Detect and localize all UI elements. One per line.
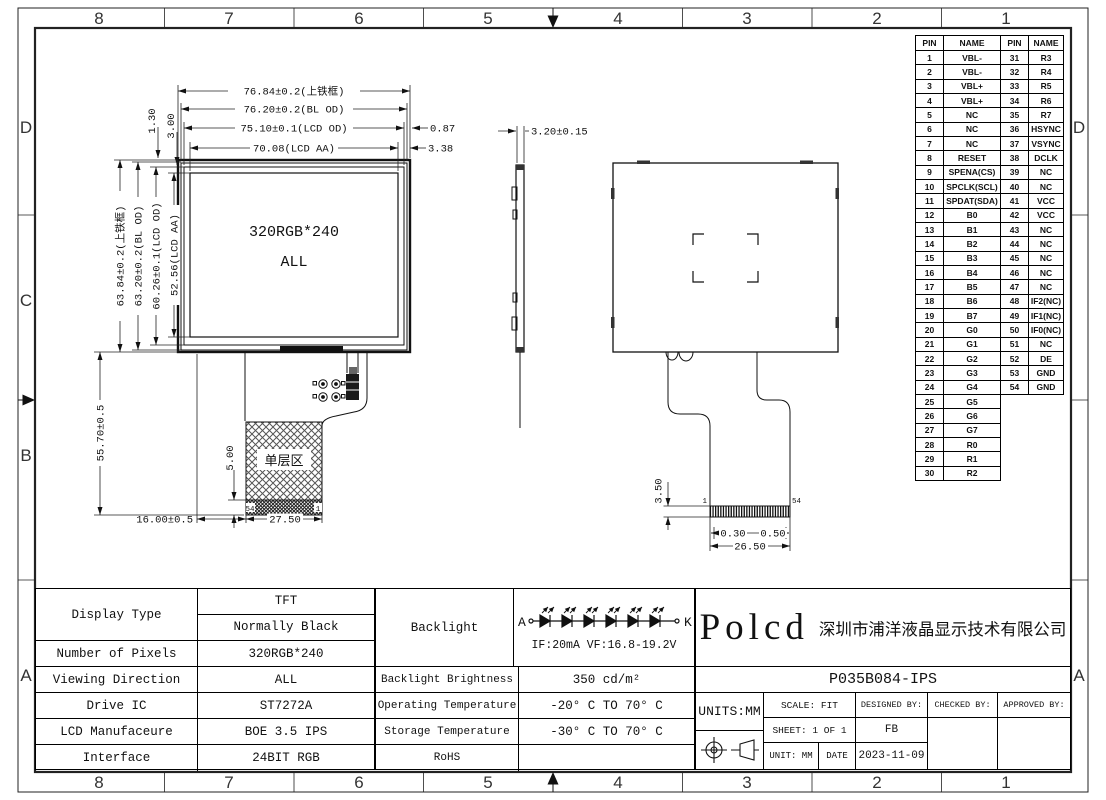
pin-number-cell: 48 xyxy=(1001,295,1029,309)
svg-text:2: 2 xyxy=(872,773,881,792)
pin-table-header: NAME xyxy=(944,36,1001,51)
pin-table-header: PIN xyxy=(1001,36,1029,51)
spec-value: Normally Black xyxy=(198,615,374,640)
pin-number-cell: 10 xyxy=(916,180,944,194)
pin-number-cell: 46 xyxy=(1001,266,1029,280)
pin-name-cell: IF1(NC) xyxy=(1029,309,1064,323)
checked-by-cell: CHECKED BY: xyxy=(928,693,997,718)
pin-number-cell: 31 xyxy=(1001,51,1029,65)
pin-name-cell: VSYNC xyxy=(1029,137,1064,151)
spec-label: Operating Temperature xyxy=(376,693,519,719)
spec-label: Interface xyxy=(36,745,198,771)
pin-name-cell: SPDAT(SDA) xyxy=(944,194,1001,208)
pin-number-cell: 5 xyxy=(916,108,944,122)
svg-text:1: 1 xyxy=(1001,773,1010,792)
svg-text:7: 7 xyxy=(224,9,233,28)
pin-name-cell: R0 xyxy=(944,438,1001,452)
pin-number-cell: 43 xyxy=(1001,223,1029,237)
svg-text:26.50: 26.50 xyxy=(734,542,766,554)
svg-text:0.50: 0.50 xyxy=(760,529,785,541)
svg-text:0.87: 0.87 xyxy=(430,124,455,136)
pin-name-cell: B3 xyxy=(944,252,1001,266)
spec-row: Drive IC ST7272A xyxy=(36,693,374,719)
projection-symbol-cell xyxy=(696,731,763,769)
pin-name-cell: NC xyxy=(1029,266,1064,280)
spec-row: Number of Pixels 320RGB*240 xyxy=(36,641,374,667)
pin-name-cell: R1 xyxy=(944,452,1001,466)
pin-name-cell: GND xyxy=(1029,366,1064,380)
svg-text:55.70±0.5: 55.70±0.5 xyxy=(96,405,108,462)
pin-number-cell: 1 xyxy=(916,51,944,65)
pin-name-cell: G4 xyxy=(944,381,1001,395)
pin-number-cell: 49 xyxy=(1001,309,1029,323)
units-column: UNITS:MM xyxy=(696,693,764,769)
designed-by-cell: DESIGNED BY: xyxy=(856,693,927,718)
date-value-cell: 2023-11-09 xyxy=(856,743,927,769)
pin-name-cell: NC xyxy=(1029,237,1064,251)
pin-name-cell: R4 xyxy=(1029,65,1064,79)
company-header: Polcd 深圳市浦洋液晶显示技术有限公司 xyxy=(696,589,1070,667)
svg-text:3.38: 3.38 xyxy=(428,144,453,156)
pin-number-cell: 17 xyxy=(916,280,944,294)
pin-table-right: PIN NAME 31 R3 32 R4 33 R5 34 R6 35 R7 3… xyxy=(1000,35,1064,395)
svg-text:5: 5 xyxy=(483,773,492,792)
pin-number-cell: 20 xyxy=(916,323,944,337)
pin-name-cell: SPCLK(SCL) xyxy=(944,180,1001,194)
pin-number-cell: 54 xyxy=(1001,381,1029,395)
led-emission-arrows xyxy=(542,607,664,613)
spec-label: Number of Pixels xyxy=(36,641,198,667)
led-circuit-diagram: A K xyxy=(514,604,694,634)
pin-table-header: PIN xyxy=(916,36,944,51)
pin-name-cell: B6 xyxy=(944,295,1001,309)
first-angle-projection-icon xyxy=(698,733,762,767)
pin-name-cell: G2 xyxy=(944,352,1001,366)
pin-name-cell: NC xyxy=(1029,280,1064,294)
company-name: 深圳市浦洋液晶显示技术有限公司 xyxy=(819,616,1067,640)
pin-name-cell: NC xyxy=(1029,180,1064,194)
svg-text:3.50: 3.50 xyxy=(654,478,666,503)
svg-text:54: 54 xyxy=(792,498,802,506)
pin-number-cell: 19 xyxy=(916,309,944,323)
pin-number-cell: 32 xyxy=(1001,65,1029,79)
svg-text:A: A xyxy=(518,615,526,630)
pin-number-cell: 44 xyxy=(1001,237,1029,251)
spec-row: LCD Manufaceure BOE 3.5 IPS xyxy=(36,719,374,745)
svg-text:7: 7 xyxy=(224,773,233,792)
spec-label: LCD Manufaceure xyxy=(36,719,198,745)
pin-number-cell: 37 xyxy=(1001,137,1029,151)
pin-name-cell: VBL- xyxy=(944,65,1001,79)
svg-text:1.30: 1.30 xyxy=(147,108,159,133)
spec-value: -20° C TO 70° C xyxy=(519,693,694,719)
svg-text:16.00±0.5: 16.00±0.5 xyxy=(136,515,193,527)
pin-number-cell: 39 xyxy=(1001,166,1029,180)
svg-text:54: 54 xyxy=(245,506,255,514)
svg-text:320RGB*240: 320RGB*240 xyxy=(249,224,339,241)
spec-row: Storage Temperature -30° C TO 70° C xyxy=(376,719,694,745)
pin-number-cell: 6 xyxy=(916,123,944,137)
spec-value xyxy=(519,745,694,771)
spec-table-left: Display Type TFT Normally Black Number o… xyxy=(35,588,375,770)
spec-row: Interface 24BIT RGB xyxy=(36,745,374,771)
svg-text:A: A xyxy=(20,666,32,685)
pin-number-cell: 30 xyxy=(916,467,944,481)
spec-label: Drive IC xyxy=(36,693,198,719)
svg-text:76.20±0.2(BL OD): 76.20±0.2(BL OD) xyxy=(244,105,345,117)
pin-name-cell: B7 xyxy=(944,309,1001,323)
pin-number-cell: 15 xyxy=(916,252,944,266)
spec-value: ST7272A xyxy=(198,693,374,719)
pin-number-cell: 34 xyxy=(1001,94,1029,108)
svg-text:D: D xyxy=(1073,118,1085,137)
spec-row: Operating Temperature -20° C TO 70° C xyxy=(376,693,694,719)
svg-text:K: K xyxy=(684,615,692,630)
svg-text:8: 8 xyxy=(94,773,103,792)
pin-table-left: PIN NAME 1 VBL- 2 VBL- 3 VBL+ 4 VBL+ 5 N… xyxy=(915,35,1001,481)
svg-text:63.20±0.2(BL OD): 63.20±0.2(BL OD) xyxy=(134,206,146,307)
svg-text:1: 1 xyxy=(1001,9,1010,28)
title-block-grid: UNITS:MM SCALE: FIT SHEET: 1 OF 1 xyxy=(696,693,1070,769)
pin-name-cell: B5 xyxy=(944,280,1001,294)
pin-name-cell: R5 xyxy=(1029,80,1064,94)
svg-text:4: 4 xyxy=(613,9,622,28)
pin-name-cell: G1 xyxy=(944,338,1001,352)
pin-number-cell: 28 xyxy=(916,438,944,452)
pin-name-cell: VCC xyxy=(1029,194,1064,208)
pin-name-cell: R6 xyxy=(1029,94,1064,108)
spec-value: ALL xyxy=(198,667,374,693)
pin-number-cell: 4 xyxy=(916,94,944,108)
designer-cell: FB xyxy=(856,718,927,743)
pin-name-cell: B0 xyxy=(944,209,1001,223)
pin-number-cell: 42 xyxy=(1001,209,1029,223)
pin-number-cell: 35 xyxy=(1001,108,1029,122)
scale-column: SCALE: FIT SHEET: 1 OF 1 UNIT: MM DATE xyxy=(764,693,856,769)
scale-cell: SCALE: FIT xyxy=(764,693,855,718)
pin-name-cell: SPENA(CS) xyxy=(944,166,1001,180)
spec-value: TFT xyxy=(198,589,374,615)
pin-name-cell: VBL+ xyxy=(944,94,1001,108)
svg-text:3: 3 xyxy=(742,9,751,28)
svg-text:75.10±0.1(LCD OD): 75.10±0.1(LCD OD) xyxy=(240,124,347,136)
svg-text:60.26±0.1(LCD OD): 60.26±0.1(LCD OD) xyxy=(152,202,164,309)
pin-number-cell: 18 xyxy=(916,295,944,309)
spec-label: Viewing Direction xyxy=(36,667,198,693)
backlight-electrical-spec: IF:20mA VF:16.8-19.2V xyxy=(532,639,677,652)
checked-empty-cell xyxy=(928,718,997,769)
spec-value: 350 cd/m² xyxy=(519,667,694,693)
pin-name-cell: R7 xyxy=(1029,108,1064,122)
pin-number-cell: 36 xyxy=(1001,123,1029,137)
pin-number-cell: 13 xyxy=(916,223,944,237)
pin-number-cell: 52 xyxy=(1001,352,1029,366)
pin-name-cell: B1 xyxy=(944,223,1001,237)
checked-column: CHECKED BY: xyxy=(928,693,998,769)
pin-name-cell: IF0(NC) xyxy=(1029,323,1064,337)
pin-number-cell: 47 xyxy=(1001,280,1029,294)
pin-name-cell: NC xyxy=(1029,223,1064,237)
spec-value: 24BIT RGB xyxy=(198,745,374,771)
svg-text:D: D xyxy=(20,118,32,137)
pin-number-cell: 23 xyxy=(916,366,944,380)
spec-table-middle: Backlight A K xyxy=(375,588,695,770)
side-dim-text: 3.20±0.15 xyxy=(531,127,588,139)
pin-name-cell: IF2(NC) xyxy=(1029,295,1064,309)
pin-name-cell: VBL+ xyxy=(944,80,1001,94)
pin-number-cell: 2 xyxy=(916,65,944,79)
svg-text:8: 8 xyxy=(94,9,103,28)
approved-by-cell: APPROVED BY: xyxy=(998,693,1070,718)
spec-value: 320RGB*240 xyxy=(198,641,374,667)
pin-name-cell: G0 xyxy=(944,323,1001,337)
pin-name-cell: R3 xyxy=(1029,51,1064,65)
spec-value: -30° C TO 70° C xyxy=(519,719,694,745)
designed-column: DESIGNED BY: FB 2023-11-09 xyxy=(856,693,928,769)
spec-row: Backlight Brightness 350 cd/m² xyxy=(376,667,694,693)
pin-number-cell: 38 xyxy=(1001,151,1029,165)
pin-number-cell: 14 xyxy=(916,237,944,251)
pin-name-cell: RESET xyxy=(944,151,1001,165)
svg-text:ALL: ALL xyxy=(280,254,307,271)
pin-number-cell: 8 xyxy=(916,151,944,165)
title-block: Polcd 深圳市浦洋液晶显示技术有限公司 P035B084-IPS UNITS… xyxy=(695,588,1071,770)
pin-number-cell: 22 xyxy=(916,352,944,366)
pin-number-cell: 40 xyxy=(1001,180,1029,194)
svg-text:0.30: 0.30 xyxy=(720,529,745,541)
pin-name-cell: HSYNC xyxy=(1029,123,1064,137)
svg-text:63.84±0.2(上铁框): 63.84±0.2(上铁框) xyxy=(114,206,128,307)
unit-cell: UNIT: MM xyxy=(764,743,819,769)
spec-row-backlight: Backlight A K xyxy=(376,589,694,667)
pin-name-cell: B4 xyxy=(944,266,1001,280)
pin-number-cell: 33 xyxy=(1001,80,1029,94)
pin-number-cell: 3 xyxy=(916,80,944,94)
side-view-dimension xyxy=(498,126,529,163)
svg-text:4: 4 xyxy=(613,773,622,792)
spec-row-display-type: Display Type TFT Normally Black xyxy=(36,589,374,641)
svg-text:5: 5 xyxy=(483,9,492,28)
spec-label: RoHS xyxy=(376,745,519,771)
pin-number-cell: 50 xyxy=(1001,323,1029,337)
pin-number-cell: 51 xyxy=(1001,338,1029,352)
pin-name-cell: R2 xyxy=(944,467,1001,481)
drawing-sheet: 8 7 6 5 4 3 2 1 8 7 6 5 4 3 2 1 D C B A … xyxy=(0,0,1106,800)
pin-number-cell: 25 xyxy=(916,395,944,409)
pin-number-cell: 9 xyxy=(916,166,944,180)
pin-name-cell: NC xyxy=(1029,252,1064,266)
units-cell: UNITS:MM xyxy=(696,693,763,731)
pin-number-cell: 26 xyxy=(916,409,944,423)
spec-label: Backlight xyxy=(376,589,514,667)
pin-name-cell: NC xyxy=(944,137,1001,151)
pin-number-cell: 29 xyxy=(916,452,944,466)
pin-number-cell: 11 xyxy=(916,194,944,208)
pin-number-cell: 53 xyxy=(1001,366,1029,380)
company-logo: Polcd xyxy=(700,606,809,649)
svg-text:3.00: 3.00 xyxy=(166,113,178,138)
pin-name-cell: NC xyxy=(1029,338,1064,352)
svg-text:6: 6 xyxy=(354,773,363,792)
date-label-cell: DATE xyxy=(819,743,855,769)
part-number: P035B084-IPS xyxy=(696,667,1070,693)
pin-number-cell: 24 xyxy=(916,381,944,395)
pin-name-cell: NC xyxy=(944,123,1001,137)
svg-text:单层区: 单层区 xyxy=(264,454,303,469)
pin-number-cell: 45 xyxy=(1001,252,1029,266)
svg-text:6: 6 xyxy=(354,9,363,28)
svg-text:52.56(LCD AA): 52.56(LCD AA) xyxy=(170,214,182,296)
pin-table-header: NAME xyxy=(1029,36,1064,51)
pin-name-cell: G6 xyxy=(944,409,1001,423)
pin-name-cell: NC xyxy=(944,108,1001,122)
side-view xyxy=(512,165,524,428)
pin-number-cell: 41 xyxy=(1001,194,1029,208)
pin-name-cell: NC xyxy=(1029,166,1064,180)
pin-name-cell: B2 xyxy=(944,237,1001,251)
pin-name-cell: VCC xyxy=(1029,209,1064,223)
svg-text:2: 2 xyxy=(872,9,881,28)
pin-name-cell: VBL- xyxy=(944,51,1001,65)
rear-view xyxy=(611,161,839,518)
sheet-cell: SHEET: 1 OF 1 xyxy=(764,718,855,743)
pin-name-cell: GND xyxy=(1029,381,1064,395)
approved-column: APPROVED BY: xyxy=(998,693,1070,769)
approved-empty-cell xyxy=(998,718,1070,769)
pin-name-cell: G7 xyxy=(944,424,1001,438)
pin-name-cell: G3 xyxy=(944,366,1001,380)
svg-text:76.84±0.2(上铁框): 76.84±0.2(上铁框) xyxy=(244,85,345,99)
svg-text:1: 1 xyxy=(316,506,321,514)
pin-number-cell: 21 xyxy=(916,338,944,352)
svg-text:3: 3 xyxy=(742,773,751,792)
pin-number-cell: 27 xyxy=(916,424,944,438)
spec-label: Backlight Brightness xyxy=(376,667,519,693)
pin-name-cell: DCLK xyxy=(1029,151,1064,165)
svg-text:C: C xyxy=(20,291,32,310)
svg-text:A: A xyxy=(1073,666,1085,685)
pin-name-cell: DE xyxy=(1029,352,1064,366)
spec-row: RoHS xyxy=(376,745,694,771)
spec-label: Storage Temperature xyxy=(376,719,519,745)
svg-text:70.08(LCD AA): 70.08(LCD AA) xyxy=(253,144,335,156)
spec-row: Viewing Direction ALL xyxy=(36,667,374,693)
pin-number-cell: 12 xyxy=(916,209,944,223)
pin-name-cell: G5 xyxy=(944,395,1001,409)
spec-label: Display Type xyxy=(36,589,198,641)
svg-text:27.50: 27.50 xyxy=(269,515,301,527)
pin-number-cell: 7 xyxy=(916,137,944,151)
backlight-circuit-cell: A K xyxy=(514,589,694,666)
svg-text:B: B xyxy=(20,446,31,465)
svg-text:1: 1 xyxy=(702,498,707,506)
pin-number-cell: 16 xyxy=(916,266,944,280)
svg-text:5.00: 5.00 xyxy=(225,445,237,470)
spec-value: BOE 3.5 IPS xyxy=(198,719,374,745)
